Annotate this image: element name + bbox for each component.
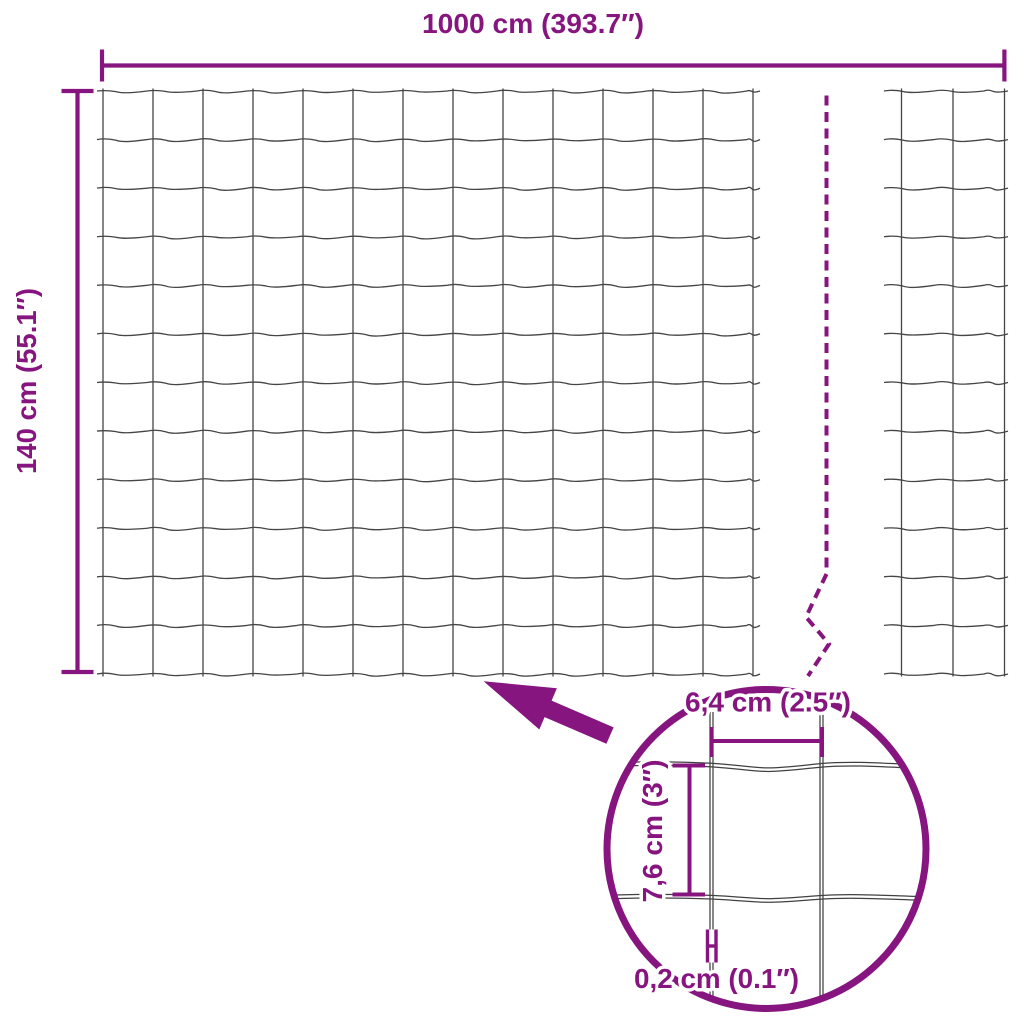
svg-text:7,6 cm (3″): 7,6 cm (3″) xyxy=(637,760,668,903)
svg-text:6,4 cm (2.5″): 6,4 cm (2.5″) xyxy=(685,687,851,718)
svg-text:0,2 cm (0.1″): 0,2 cm (0.1″) xyxy=(634,963,799,994)
svg-text:1000 cm (393.7″): 1000 cm (393.7″) xyxy=(422,8,644,39)
svg-text:140 cm (55.1″): 140 cm (55.1″) xyxy=(11,288,42,474)
